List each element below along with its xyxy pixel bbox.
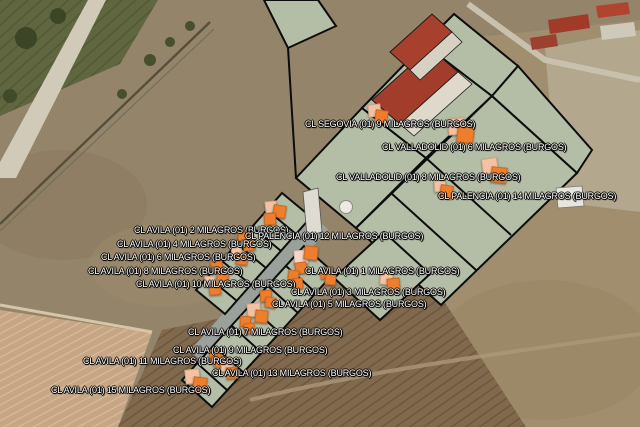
tree bbox=[165, 37, 175, 47]
parcel-label-avila-6: CL AVILA (01) 6 MILAGROS (BURGOS) bbox=[101, 252, 255, 262]
tree bbox=[3, 89, 17, 103]
parcel-label-avila-9: CL AVILA (01) 9 MILAGROS (BURGOS) bbox=[173, 345, 327, 355]
tree bbox=[117, 89, 127, 99]
water-tank bbox=[340, 201, 353, 214]
parcel-label-palencia-14: CL PALENCIA (01) 14 MILAGROS (BURGOS) bbox=[438, 191, 616, 201]
marker-square-icon[interactable] bbox=[303, 245, 319, 261]
parcel-label-segovia-9: CL SEGOVIA (01) 9 MILAGROS (BURGOS) bbox=[305, 119, 475, 129]
parcel-label-avila-3: CL AVILA (01) 3 MILAGROS (BURGOS) bbox=[291, 287, 445, 297]
parcel-label-avila-7: CL AVILA (01) 7 MILAGROS (BURGOS) bbox=[188, 327, 342, 337]
tree bbox=[144, 54, 156, 66]
tree bbox=[185, 21, 195, 31]
parcel-label-palencia-12: CL PALENCIA (01) 12 MILAGROS (BURGOS) bbox=[245, 231, 423, 241]
marker-square-icon[interactable] bbox=[264, 213, 277, 226]
tree bbox=[50, 8, 66, 24]
satellite-map-view[interactable]: CL SEGOVIA (01) 9 MILAGROS (BURGOS)CL VA… bbox=[0, 0, 640, 427]
parcel-label-avila-10: CL AVILA (01) 10 MILAGROS (BURGOS) bbox=[136, 279, 295, 289]
parcel-label-avila-8: CL AVILA (01) 8 MILAGROS (BURGOS) bbox=[88, 266, 242, 276]
parcel-label-avila-5: CL AVILA (01) 5 MILAGROS (BURGOS) bbox=[272, 299, 426, 309]
tree bbox=[15, 27, 37, 49]
parcel-label-valladolid-8: CL VALLADOLID (01) 8 MILAGROS (BURGOS) bbox=[336, 172, 520, 182]
parcel-label-avila-15: CL AVILA (01) 15 MILAGROS (BURGOS) bbox=[51, 385, 210, 395]
parcel-label-avila-13: CL AVILA (01) 13 MILAGROS (BURGOS) bbox=[212, 368, 371, 378]
parcel-label-avila-11: CL AVILA (01) 11 MILAGROS (BURGOS) bbox=[83, 356, 242, 366]
parcel-label-valladolid-6: CL VALLADOLID (01) 6 MILAGROS (BURGOS) bbox=[382, 142, 566, 152]
parcel-label-avila-1: CL AVILA (01) 1 MILAGROS (BURGOS) bbox=[305, 266, 459, 276]
marker-square-icon[interactable] bbox=[254, 309, 268, 323]
